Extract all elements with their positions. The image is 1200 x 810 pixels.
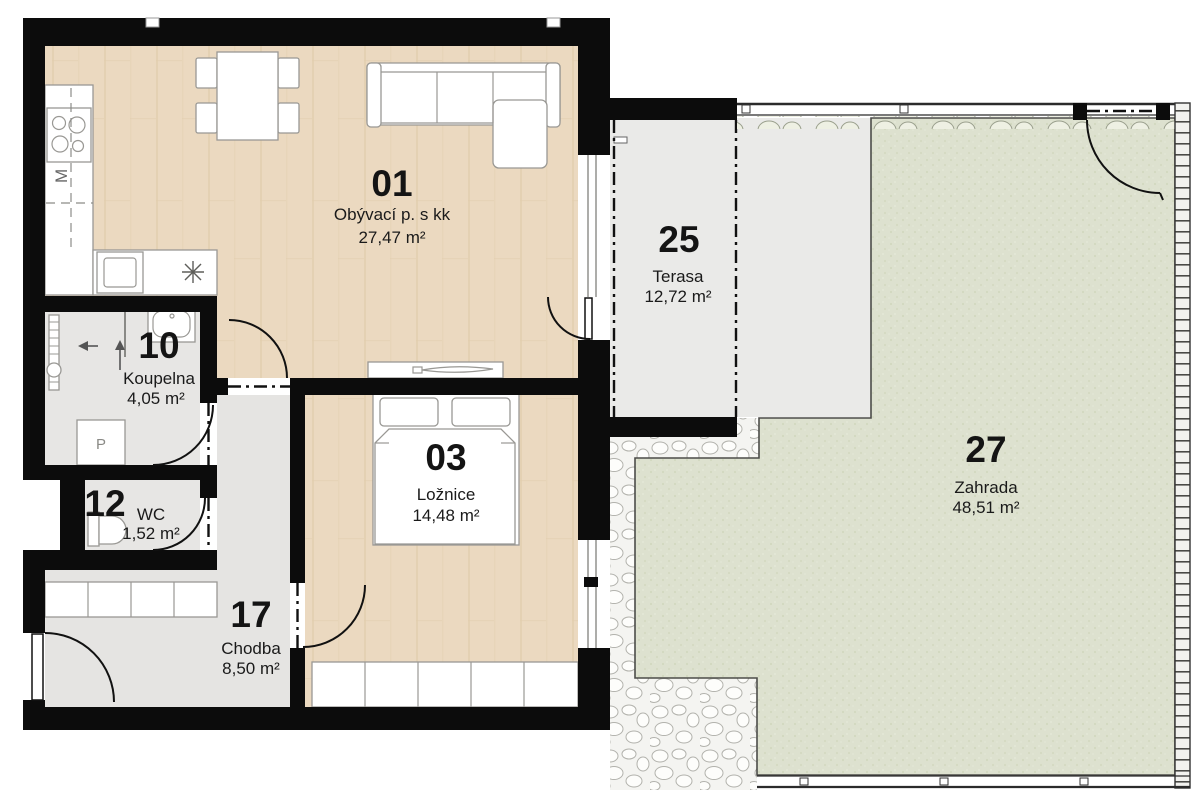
room-name: Chodba bbox=[221, 639, 281, 658]
shower-drain bbox=[47, 363, 61, 377]
fence-post bbox=[742, 105, 750, 113]
terrace-door-leaf bbox=[585, 298, 592, 339]
room-area: 48,51 m² bbox=[952, 498, 1019, 517]
terrace-door-opening bbox=[578, 297, 610, 340]
room-name: WC bbox=[137, 505, 165, 524]
wall-terrace-top bbox=[610, 98, 737, 120]
room-number: 10 bbox=[138, 325, 179, 366]
entry-door-leaf bbox=[32, 634, 43, 700]
wall-right-top bbox=[578, 46, 610, 155]
room-area: 14,48 m² bbox=[412, 506, 479, 525]
wall-bath-wc bbox=[23, 465, 217, 480]
fence-post bbox=[940, 778, 948, 785]
wall-left-mid bbox=[23, 570, 45, 633]
pillow bbox=[452, 398, 510, 426]
wall-terrace-bottom bbox=[610, 417, 737, 437]
room-name: Ložnice bbox=[417, 485, 476, 504]
wall-living-bedroom bbox=[290, 378, 610, 395]
right-hedge bbox=[1175, 103, 1190, 788]
sofa-arm-left bbox=[367, 63, 381, 127]
hall-strip-floor bbox=[217, 395, 290, 570]
dining-chair bbox=[196, 58, 217, 88]
fence-post bbox=[1080, 778, 1088, 785]
room-area: 1,52 m² bbox=[122, 524, 180, 543]
room-number: 03 bbox=[425, 437, 466, 478]
bedroom-wardrobe bbox=[312, 662, 578, 707]
wall-right-bottom bbox=[578, 648, 610, 730]
room-number: 12 bbox=[84, 483, 125, 524]
pillow bbox=[380, 398, 438, 426]
wall-wc-left bbox=[60, 480, 85, 550]
room-area: 12,72 m² bbox=[644, 287, 711, 306]
terrace-glazing bbox=[578, 155, 610, 297]
fence-post bbox=[900, 105, 908, 113]
room-name: Koupelna bbox=[123, 369, 195, 388]
wall-bath-right-lower bbox=[200, 465, 217, 498]
stove bbox=[47, 108, 91, 162]
wall-kitchen-bath bbox=[23, 296, 217, 312]
hob-star-icon bbox=[182, 261, 204, 283]
room-area: 27,47 m² bbox=[358, 228, 425, 247]
wall-bath-right-upper bbox=[200, 296, 217, 403]
wall-right-mid bbox=[578, 340, 610, 540]
bedroom-window bbox=[578, 540, 610, 648]
room-name: Zahrada bbox=[954, 478, 1018, 497]
room-number: 25 bbox=[658, 219, 699, 260]
terrace-floor bbox=[610, 118, 871, 417]
fence-post bbox=[800, 778, 808, 785]
shower-channel bbox=[49, 315, 59, 390]
room-name: Obývací p. s kk bbox=[334, 205, 451, 224]
room-number: 27 bbox=[965, 429, 1006, 470]
gate-post bbox=[1073, 103, 1087, 120]
dining-table bbox=[217, 52, 278, 140]
top-wall-vent bbox=[146, 18, 159, 27]
dining-chair bbox=[278, 103, 299, 133]
tv-board bbox=[368, 362, 503, 378]
gate-post bbox=[1156, 103, 1170, 120]
room-area: 4,05 m² bbox=[127, 389, 185, 408]
wall-wc-hall bbox=[23, 550, 217, 570]
room-number: 01 bbox=[371, 163, 412, 204]
bedroom-window-mullion bbox=[584, 577, 598, 587]
sofa-chaise bbox=[493, 100, 547, 168]
fridge-mark: M bbox=[52, 169, 71, 183]
wall-bedroom-left-upper bbox=[290, 395, 305, 583]
wall-bottom bbox=[23, 707, 610, 730]
washing-machine-label: P bbox=[96, 436, 106, 453]
wall-top bbox=[23, 18, 610, 46]
floorplan: M bbox=[0, 0, 1200, 810]
top-wall-vent bbox=[547, 18, 560, 27]
room-number: 17 bbox=[230, 594, 271, 635]
wall-bedroom-left-lower bbox=[290, 648, 305, 707]
room-name: Terasa bbox=[652, 267, 704, 286]
dining-chair bbox=[196, 103, 217, 133]
floorplan-svg: M bbox=[0, 0, 1200, 810]
wall-living-bedroom-stub bbox=[217, 378, 228, 395]
room-area: 8,50 m² bbox=[222, 659, 280, 678]
dining-chair bbox=[278, 58, 299, 88]
shrub-row bbox=[737, 116, 1175, 129]
door-handle bbox=[614, 137, 627, 143]
wall-left-upper bbox=[23, 46, 45, 480]
sofa-arm-right bbox=[546, 63, 560, 127]
